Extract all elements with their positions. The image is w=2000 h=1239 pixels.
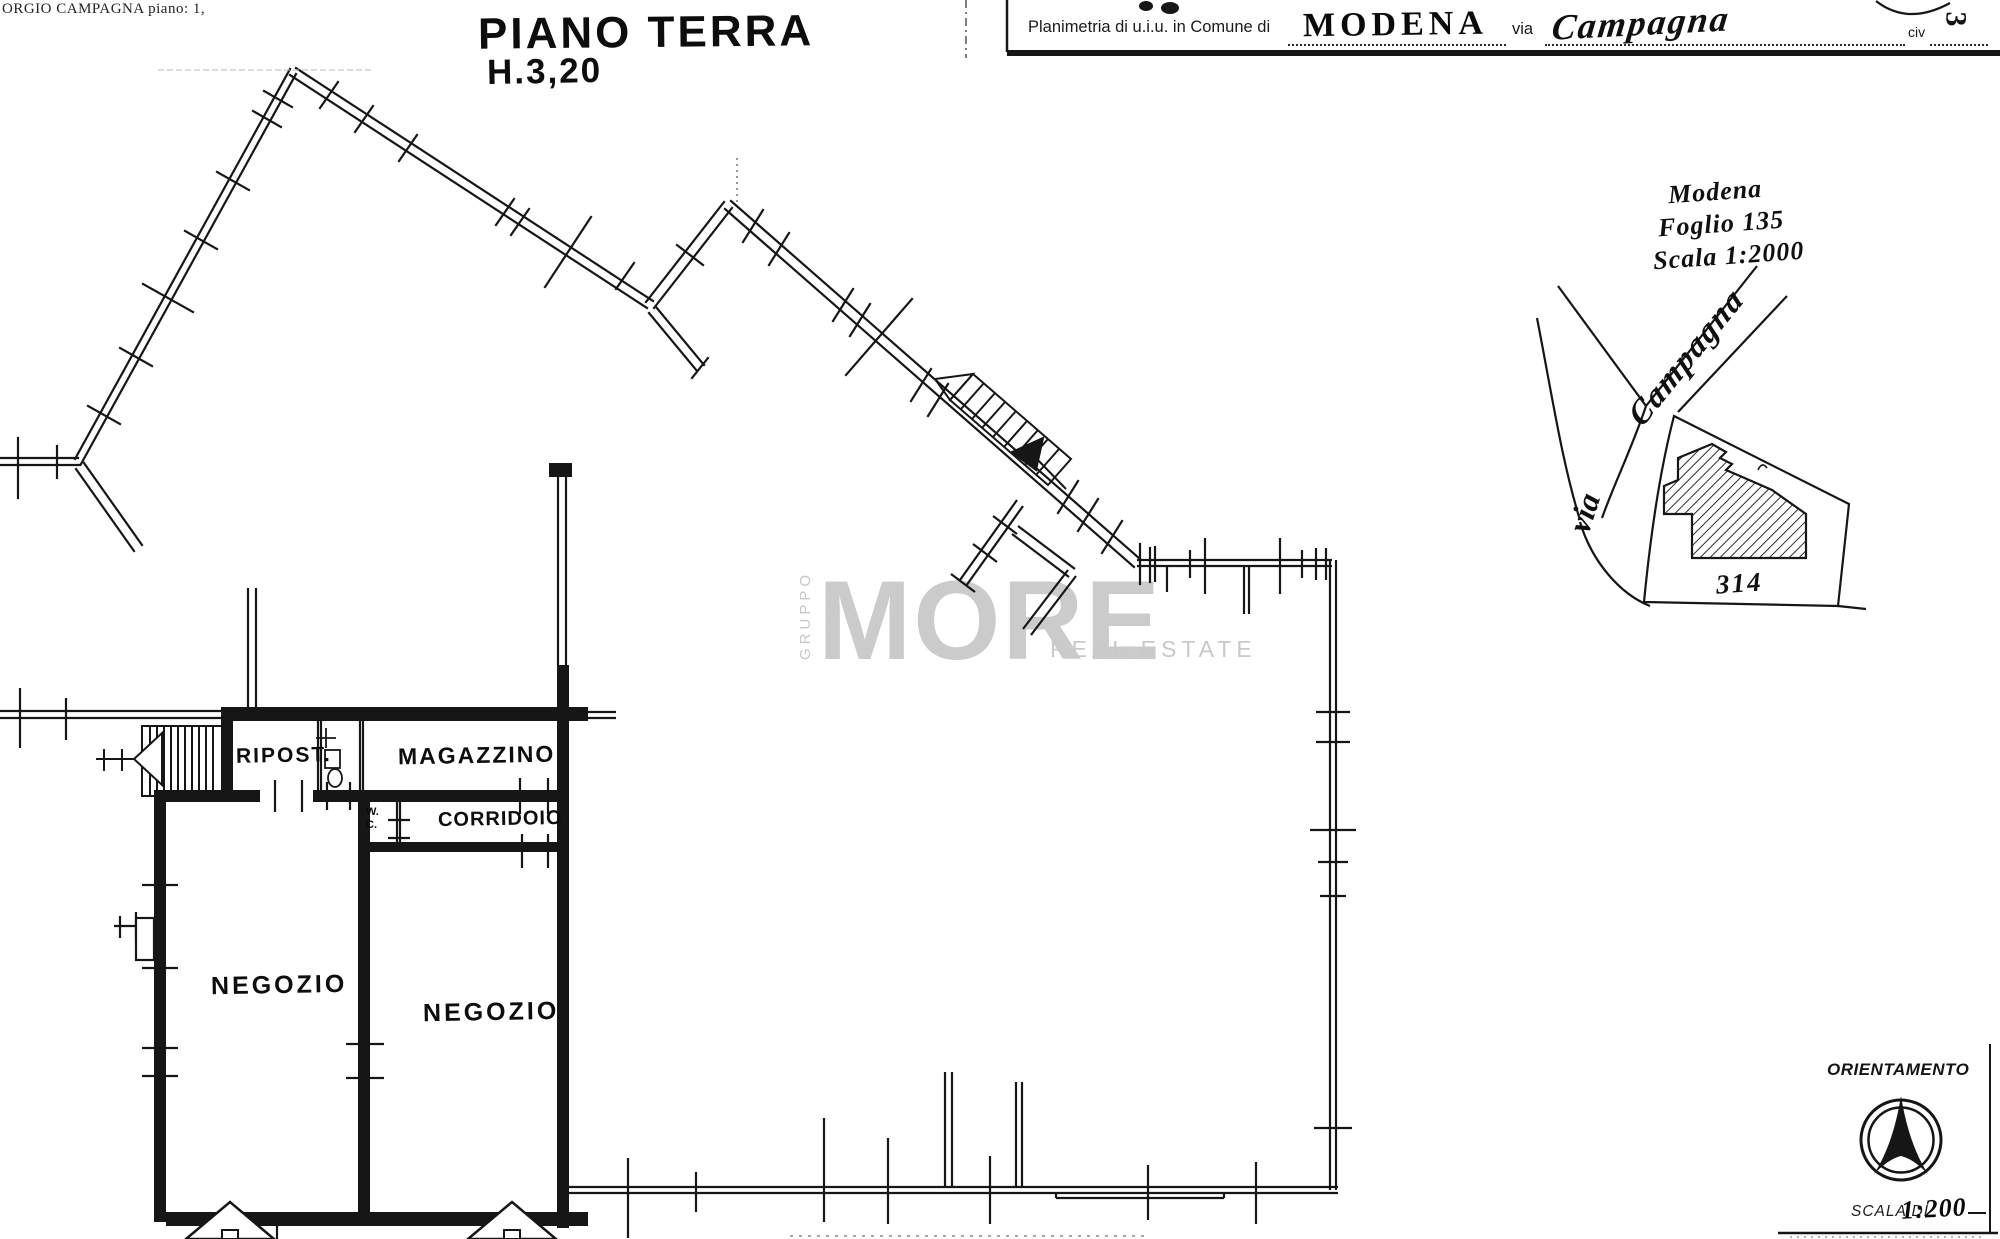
building-footprint bbox=[1664, 444, 1806, 558]
building-thin-lines bbox=[0, 477, 616, 1239]
map-parcel-number: 314 bbox=[1715, 566, 1764, 600]
room-label-magazzino: MAGAZZINO bbox=[398, 741, 556, 771]
ramp-rails bbox=[951, 500, 1076, 635]
header-via-label: via bbox=[1512, 20, 1533, 39]
room-label-wc: W. C. bbox=[366, 806, 379, 831]
scale-handwritten: 1:200 bbox=[1900, 1192, 1967, 1225]
header-civ-label: civ bbox=[1908, 24, 1925, 40]
top-left-note: ORGIO CAMPAGNA piano: 1, bbox=[2, 1, 205, 18]
cadastre-city: Modena bbox=[1667, 173, 1763, 211]
stair-arrow bbox=[134, 733, 162, 785]
external-staircase bbox=[935, 374, 1071, 489]
sheet-page-number: 3 bbox=[1939, 12, 1973, 27]
orientation-label: ORIENTAMENTO bbox=[1827, 1060, 1969, 1080]
wc-line2: C. bbox=[366, 819, 379, 832]
room-label-negozio-left: NEGOZIO bbox=[211, 970, 348, 1001]
header-prefix: Planimetria di u.i.u. in Comune di bbox=[1028, 18, 1270, 37]
dotted-leader-civ bbox=[1930, 43, 1988, 46]
header-comune-stamp: MODENA bbox=[1303, 5, 1488, 46]
compass bbox=[1861, 1096, 1941, 1180]
wc-line1: W. bbox=[366, 806, 379, 819]
compass-north-arrow bbox=[1874, 1096, 1928, 1174]
room-label-negozio-right: NEGOZIO bbox=[423, 997, 560, 1028]
boundary-zigzag bbox=[0, 68, 1150, 584]
room-label-corridoio: CORRIDOIO bbox=[438, 807, 563, 832]
exterior-step bbox=[136, 918, 154, 960]
scanned-floor-plan-page: GRUPPO MORE REAL ESTATE bbox=[0, 0, 2000, 1239]
plan-height-note: H.3,20 bbox=[487, 51, 603, 93]
internal-staircase bbox=[96, 726, 222, 796]
open-area-outline bbox=[563, 538, 1356, 1238]
room-label-ripostiglio: RIPOST. bbox=[236, 743, 332, 769]
